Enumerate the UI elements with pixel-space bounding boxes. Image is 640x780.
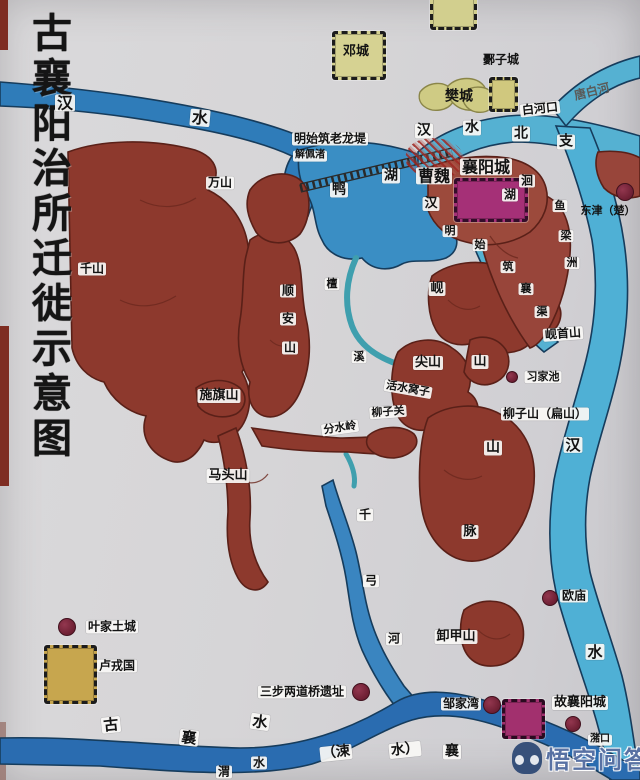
map-title: 古襄阳治所迁徙示意图 (20, 6, 76, 468)
hanshui-north-4: 支 (557, 134, 575, 149)
qiangonghe-label-3: 河 (386, 633, 402, 646)
zoujiawan-label: 邹家湾 (441, 698, 481, 711)
hanshui-east-1: 汉 (563, 437, 582, 453)
oumiao-marker (542, 590, 558, 606)
yuliangzhou-label-2: 梁 (559, 230, 574, 242)
yahu-label-2: 湖 (382, 168, 400, 183)
watermark: 悟空问答 (512, 740, 640, 775)
xianshan-label-2: 山 (471, 355, 488, 369)
tanxi-label-2: 溪 (352, 351, 367, 363)
yejiatucheng-marker (58, 618, 76, 636)
tanxi-label-1: 檀 (325, 278, 340, 290)
lurongguo-label: 卢戎国 (97, 660, 137, 673)
liuziguan-label: 柳子关 (369, 405, 407, 419)
lurongguo-castle-icon (44, 645, 97, 704)
yuliangzhou-label-1: 鱼 (553, 200, 568, 212)
hanshui-north-3: 北 (512, 126, 530, 141)
guxiangyangcheng-label: 故襄阳城 (552, 696, 608, 710)
guxiangshui-label-3: 水 (249, 713, 270, 732)
watermark-text: 悟空问答 (546, 740, 640, 775)
edge-castle-icon (430, 0, 477, 30)
sanbu-bridge-marker (352, 683, 370, 701)
xiangqu-text-1: 明 (443, 225, 458, 237)
xiangqu-text-3: 筑 (501, 261, 516, 273)
guxiangshui-label-1: 古 (101, 716, 122, 734)
xiangyangcheng-label: 襄阳城 (460, 158, 512, 175)
shanmai-label-2: 脉 (461, 525, 478, 539)
youzicheng-label: 鄾子城 (481, 54, 521, 67)
xijiachi-marker (506, 371, 518, 383)
edge-stripe (0, 326, 9, 486)
jiepeizhu-label: 解佩渚 (293, 151, 327, 162)
shiqishan-label: 施旗山 (197, 389, 240, 403)
hanshui-north-1: 汉 (415, 123, 433, 138)
yuliangzhou-label-3: 洲 (565, 257, 580, 269)
xianshoushan-label: 岘首山 (543, 326, 584, 342)
dengcheng-label: 邓城 (341, 45, 371, 59)
liuzishan-label: 柳子山（扁山） (501, 408, 589, 421)
oumiao-label: 欧庙 (560, 590, 588, 603)
zoujiawan-marker (483, 696, 501, 714)
jianshan-label: 尖山 (413, 356, 443, 370)
zhukou-marker (565, 716, 581, 732)
hanshui-east-2: 水 (585, 644, 604, 660)
caowei-label: 曹魏 (416, 167, 452, 184)
yejiatucheng-label: 叶家土城 (86, 621, 138, 634)
qiangonghe-label-1: 千 (357, 509, 373, 522)
xiejiashan-label: 卸甲山 (434, 630, 477, 644)
edge-stripe (0, 0, 8, 50)
xiangshui-mouth-label: 襄 (443, 744, 461, 759)
hanshui-label-west-2: 水 (189, 109, 210, 128)
huihu-label-1: 洄 (519, 175, 535, 188)
hanshui-north-2: 水 (463, 120, 481, 135)
qianshan-label: 千山 (78, 263, 106, 276)
fancheng-label: 樊城 (443, 89, 475, 104)
shanmai-label-1: 山 (484, 440, 502, 455)
map-canvas: 古襄阳治所迁徙示意图 汉水邓城鄾子城樊城白河口唐白河汉水北支明始筑老龙堤解佩渚万… (0, 0, 640, 780)
sanbu-bridge-label: 三步两道桥遗址 (258, 686, 346, 699)
guxiangyangcheng-castle-icon (502, 699, 545, 739)
xijiachi-label: 习家池 (525, 371, 562, 383)
laolongdi-label: 明始筑老龙堤 (292, 133, 368, 146)
dongjin-marker (616, 183, 634, 201)
youzicheng-castle-icon (489, 77, 518, 112)
partial-label-2: 水 (251, 757, 267, 770)
dongjin-label: 东津（楚） (579, 205, 638, 217)
shunanshan-label-2: 安 (280, 313, 296, 326)
shunanshan-label-1: 顺 (280, 285, 296, 298)
xiangqu-text-4: 襄 (519, 283, 534, 295)
xiangqu-text-5: 渠 (535, 306, 550, 318)
watermark-logo-icon (512, 742, 542, 774)
matoushan-label: 马头山 (206, 469, 249, 483)
huihu-label-2: 湖 (502, 189, 518, 202)
partial-label-1: 渭 (216, 766, 232, 779)
guxiangshui-label-2: 襄 (179, 729, 200, 747)
wanshan-label: 万山 (206, 177, 234, 190)
yahu-label-1: 鸭 (330, 182, 348, 197)
qiangonghe-label-2: 弓 (363, 575, 379, 588)
han-channel-label: 汉 (422, 197, 439, 211)
shunanshan-label-3: 山 (282, 342, 298, 355)
hanshui-label-west: 汉 (55, 94, 75, 111)
xiangqu-text-2: 始 (473, 239, 488, 251)
xianshan-label-1: 岘 (428, 282, 445, 296)
